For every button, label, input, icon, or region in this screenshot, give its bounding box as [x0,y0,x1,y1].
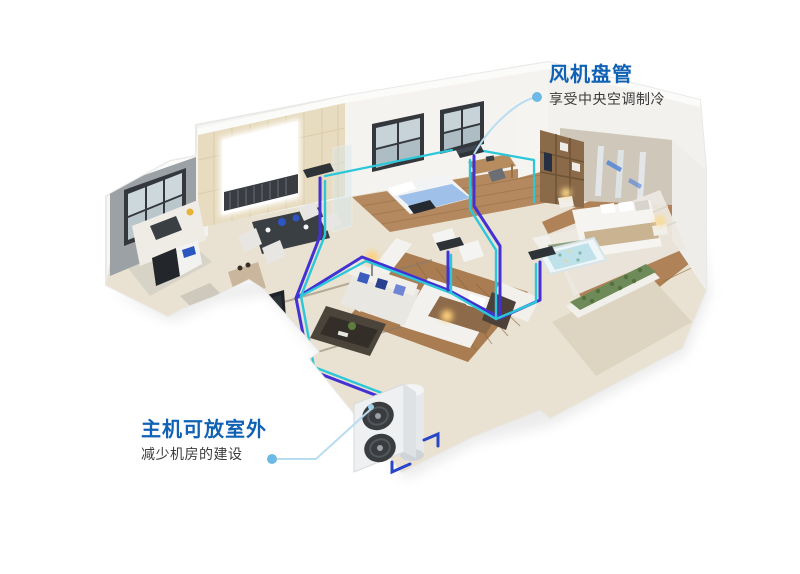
outdoor-unit-callout-subtitle: 减少机房的建设 [141,446,267,463]
media-console [252,336,310,376]
outdoor-unit-callout: 主机可放室外 减少机房的建设 [141,419,267,463]
fan-coil-callout: 风机盘管 享受中央空调制冷 [549,64,665,108]
leader-dot-fan-coil [532,92,542,102]
outdoor-unit-callout-title: 主机可放室外 [141,419,267,441]
leader-dot-outdoor-unit [267,454,277,464]
fan-coil-callout-title: 风机盘管 [549,64,665,86]
hvac-home-infographic: 风机盘管 享受中央空调制冷 主机可放室外 减少机房的建设 [0,0,800,574]
apartment-3d-illustration [0,0,800,574]
wardrobe [540,130,584,208]
fan-coil-callout-subtitle: 享受中央空调制冷 [549,91,665,108]
tv-screen [250,290,288,356]
